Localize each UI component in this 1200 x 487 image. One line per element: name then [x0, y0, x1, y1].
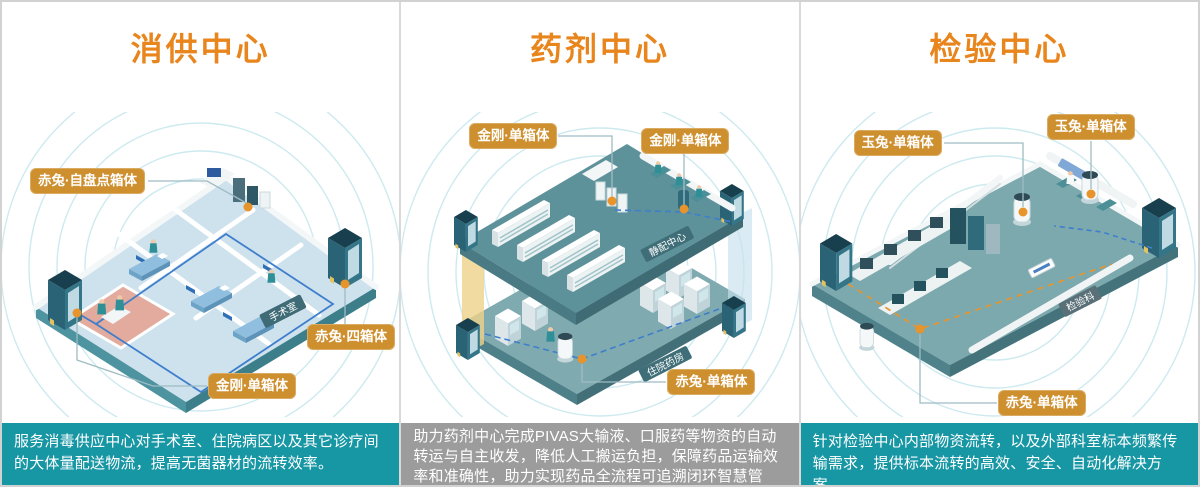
device-label-badge: 金刚·单箱体	[641, 128, 729, 154]
device-label-badge: 金刚·单箱体	[469, 123, 557, 149]
delivery-robot-icon	[557, 333, 573, 363]
panel-pharmacy-center: 药剂中心	[399, 2, 798, 485]
waypoint-dot	[1086, 190, 1095, 199]
infographic: 消供中心	[0, 0, 1200, 487]
panel-title: 药剂中心	[401, 24, 798, 70]
device-label-badge: 赤兔·四箱体	[307, 324, 395, 350]
cabinet-icon	[820, 234, 852, 291]
waypoint-dot	[1018, 208, 1027, 217]
cabinet-icon	[328, 228, 362, 288]
panel-caption: 针对检验中心内部物资流转，以及外部科室标本频繁传输需求，提供标本流转的高效、安全…	[801, 423, 1198, 485]
lab-center-illustration: 检验科	[800, 112, 1198, 417]
device-label-badge: 赤兔·单箱体	[998, 390, 1086, 416]
delivery-robot-icon	[1081, 171, 1099, 204]
panel-supply-center: 消供中心	[2, 2, 399, 485]
panel-lab-center: 检验中心	[799, 2, 1198, 485]
waypoint-dot	[680, 205, 689, 214]
device-label-badge: 玉兔·单箱体	[1047, 114, 1135, 140]
device-label-badge: 金刚·单箱体	[208, 373, 296, 399]
panel-title: 检验中心	[801, 24, 1198, 70]
waypoint-dot	[244, 203, 253, 212]
waypoint-dot	[608, 197, 617, 206]
waypoint-dot	[73, 309, 82, 318]
waypoint-dot	[915, 325, 924, 334]
waypoint-dot	[578, 355, 587, 364]
panel-caption: 服务消毒供应中心对手术室、住院病区以及其它诊疗间的大体量配送物流，提高无菌器材的…	[2, 423, 399, 485]
delivery-robot-icon	[859, 323, 874, 351]
panel-caption: 助力药剂中心完成PIVAS大输液、口服药等物资的自动转运与自主收发，降低人工搬运…	[401, 423, 798, 485]
device-label-badge: 赤兔·自盘点箱体	[30, 168, 145, 194]
device-label-badge: 玉兔·单箱体	[854, 130, 942, 156]
device-label-badge: 赤兔·单箱体	[667, 369, 755, 395]
panel-title: 消供中心	[2, 24, 399, 70]
waypoint-dot	[341, 280, 350, 289]
cabinet-icon	[1142, 198, 1176, 258]
supply-center-illustration: 手术室	[2, 112, 399, 417]
